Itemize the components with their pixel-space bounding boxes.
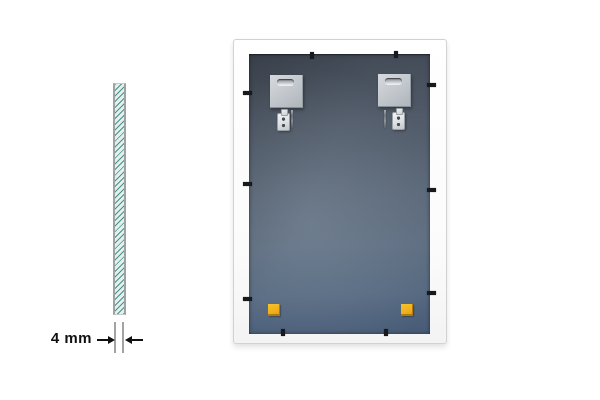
spring-clip [427, 291, 436, 295]
arrow-shaft [97, 339, 108, 341]
mirror-frame-back [233, 39, 447, 344]
spring-clip [243, 297, 252, 301]
arrow-head [108, 336, 115, 344]
arrow-head [125, 336, 132, 344]
spring-clip [384, 329, 388, 336]
arrow-shaft [132, 339, 143, 341]
corner-pad-right [401, 304, 413, 316]
product-illustration: 4 mm [0, 0, 600, 400]
screw-icon [291, 110, 293, 128]
spring-clip [394, 51, 398, 58]
corner-pad-left [268, 304, 280, 316]
spring-clip [427, 188, 436, 192]
spring-clip [243, 91, 252, 95]
hanger-slot-icon [385, 78, 402, 84]
hanger-plate-right [378, 74, 411, 107]
spring-clip [427, 83, 436, 87]
thickness-label: 4 mm [50, 330, 92, 347]
dimension-extension-line-right [122, 322, 124, 353]
screw-icon [384, 110, 386, 128]
spring-clip [281, 329, 285, 336]
spring-clip [243, 182, 252, 186]
hook-bracket-icon [277, 113, 290, 131]
glass-cross-section [113, 83, 126, 315]
back-panel [249, 54, 430, 334]
hanger-plate-left [270, 75, 303, 108]
hanger-slot-icon [277, 79, 294, 85]
hook-bracket-icon [392, 112, 405, 130]
spring-clip [310, 52, 314, 59]
